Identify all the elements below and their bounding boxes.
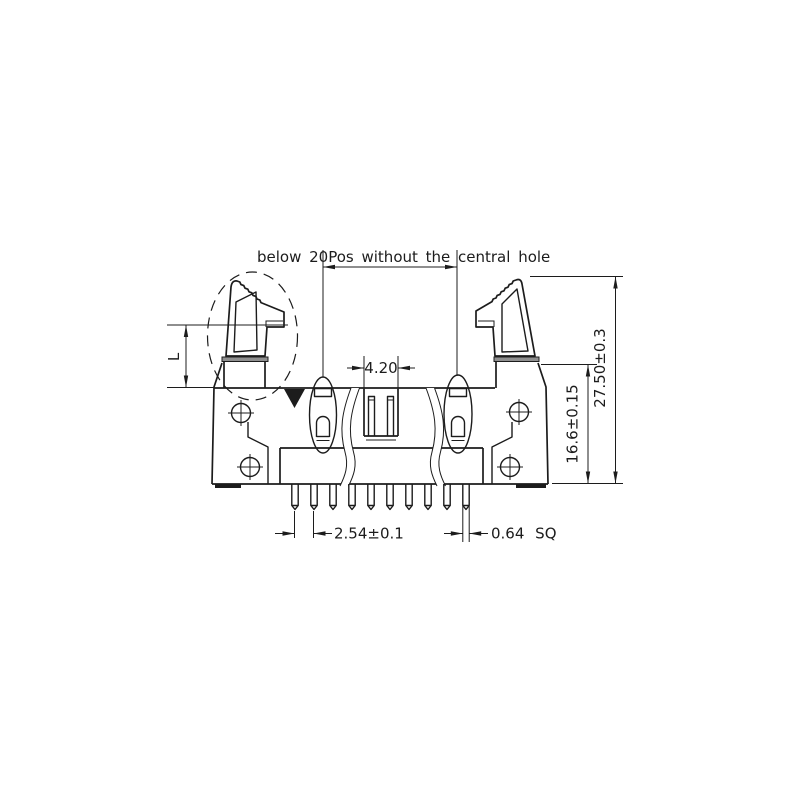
hole-callout-ellipse-right: [444, 375, 472, 453]
index-triangle-marker: [284, 389, 305, 408]
right-latch-seat: [494, 357, 539, 362]
dim-insulator-height-text: 16.6±0.15: [564, 384, 582, 463]
dim-pin-pitch: 2.54±0.1: [275, 511, 404, 543]
right-screw-bottom: [497, 454, 523, 480]
polarizing-hole-right: [450, 389, 467, 441]
technical-drawing: below 20Pos without the central hole L 4…: [0, 0, 800, 800]
left-screw-top: [228, 400, 254, 426]
dim-pin-square-text: 0.64 SQ: [491, 525, 557, 543]
left-foot: [215, 484, 241, 488]
right-body-half: [476, 280, 548, 489]
annotations: below 20Pos without the central hole L 4…: [165, 248, 623, 543]
dim-overall-height-text: 27.50±0.3: [591, 328, 609, 407]
key-wall-right: [388, 397, 394, 437]
right-inner-contour: [492, 422, 512, 484]
pin-row: [292, 484, 469, 510]
right-latch-step: [478, 321, 494, 327]
dim-insulator-height: 16.6±0.15: [541, 365, 597, 484]
left-latch-seat: [222, 357, 268, 362]
dim-latch-height-text: L: [165, 352, 183, 361]
dim-pin-pitch-text: 2.54±0.1: [334, 525, 404, 543]
break-lines: [340, 388, 446, 486]
right-foot: [516, 484, 546, 488]
left-inner-contour: [248, 422, 268, 484]
center-key-slot: [364, 389, 398, 440]
latch-detail-ellipse: [208, 272, 298, 400]
note-text: below 20Pos without the central hole: [257, 248, 550, 266]
dim-key-slot-width: 4.20: [347, 356, 415, 389]
left-outer-edge: [212, 363, 222, 484]
connector-body: [212, 280, 548, 510]
right-screw-top: [506, 399, 532, 425]
right-outer-edge: [538, 363, 548, 484]
dim-pin-square: 0.64 SQ: [444, 506, 557, 543]
left-screw-bottom: [237, 454, 263, 480]
polarizing-hole-left: [315, 389, 332, 441]
left-latch-inner: [234, 292, 257, 352]
left-body-half: [212, 281, 284, 488]
key-wall-left: [369, 397, 375, 437]
dim-key-slot-width-text: 4.20: [364, 359, 397, 377]
left-latch-step: [266, 321, 283, 327]
